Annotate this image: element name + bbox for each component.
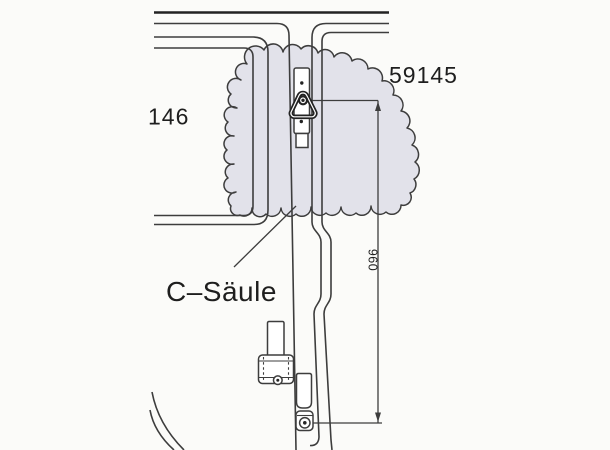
c-saeule-label: C–Säule xyxy=(166,276,277,307)
retractor-strap xyxy=(268,322,285,357)
plate-hole-top xyxy=(300,81,303,84)
lower-anchor-bolt-center xyxy=(303,421,307,425)
diagram-canvas: 960 59145 146 C–Säule xyxy=(0,0,610,450)
belt-guide-piece xyxy=(297,374,312,409)
dimension-label: 960 xyxy=(366,249,380,271)
anchor-bolt-center xyxy=(301,99,304,102)
plate-hole-bottom xyxy=(300,120,303,123)
housing-bolt-center xyxy=(276,379,279,382)
c-pillar-technical-diagram: 960 59145 146 C–Säule xyxy=(0,0,610,450)
part-number-left-label: 146 xyxy=(148,104,189,130)
anchor-plate-lower-strip xyxy=(296,134,308,148)
wheel-arch-inner-arc xyxy=(150,410,174,450)
wheel-arch xyxy=(150,392,184,450)
wheel-arch-outer-arc xyxy=(152,392,184,450)
part-number-right-label: 59145 xyxy=(389,62,458,88)
lower-fittings xyxy=(259,322,314,431)
dimension-arrow-down xyxy=(375,413,381,423)
